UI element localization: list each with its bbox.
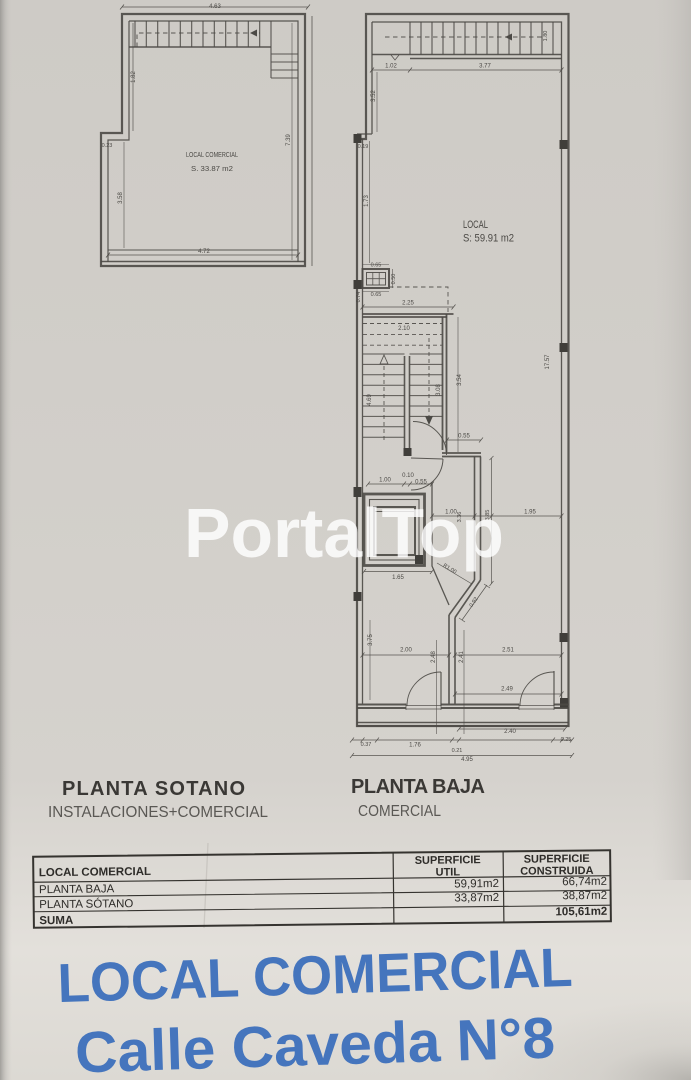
svg-text:0.21: 0.21 bbox=[452, 748, 463, 754]
svg-text:LOCAL COMERCIAL: LOCAL COMERCIAL bbox=[186, 150, 238, 159]
svg-text:PLANTA BAJA: PLANTA BAJA bbox=[39, 883, 115, 896]
svg-text:LOCAL COMERCIAL: LOCAL COMERCIAL bbox=[39, 866, 151, 879]
svg-text:PLANTA BAJA: PLANTA BAJA bbox=[351, 776, 486, 798]
svg-text:3.75: 3.75 bbox=[368, 634, 374, 646]
svg-text:0.55: 0.55 bbox=[415, 480, 427, 486]
svg-text:0.23: 0.23 bbox=[102, 143, 113, 149]
svg-text:0.19: 0.19 bbox=[358, 144, 369, 150]
svg-text:COMERCIAL: COMERCIAL bbox=[358, 803, 441, 820]
svg-text:2.00: 2.00 bbox=[400, 648, 412, 654]
svg-text:1.02: 1.02 bbox=[385, 64, 397, 70]
svg-text:4.72: 4.72 bbox=[198, 249, 210, 255]
svg-text:S: 59.91 m2: S: 59.91 m2 bbox=[463, 233, 514, 245]
svg-text:3.54: 3.54 bbox=[457, 374, 463, 386]
svg-text:1.76: 1.76 bbox=[409, 743, 421, 749]
svg-text:4.69: 4.69 bbox=[367, 394, 373, 406]
svg-text:4.95: 4.95 bbox=[461, 757, 473, 763]
svg-text:1.95: 1.95 bbox=[524, 510, 536, 516]
svg-text:3.77: 3.77 bbox=[479, 64, 491, 70]
svg-text:38,87m2: 38,87m2 bbox=[562, 890, 607, 903]
svg-text:1.80: 1.80 bbox=[543, 31, 549, 42]
svg-text:SUPERFICIE: SUPERFICIE bbox=[415, 854, 481, 867]
svg-text:1.00: 1.00 bbox=[379, 478, 391, 484]
svg-text:INSTALACIONES+COMERCIAL: INSTALACIONES+COMERCIAL bbox=[48, 804, 268, 821]
svg-text:3.52: 3.52 bbox=[371, 90, 377, 102]
svg-text:2.25: 2.25 bbox=[402, 301, 414, 307]
svg-text:59,91m2: 59,91m2 bbox=[454, 878, 499, 891]
svg-text:SUPERFICIE: SUPERFICIE bbox=[524, 853, 590, 866]
svg-text:UTIL: UTIL bbox=[436, 866, 461, 878]
svg-text:2.48: 2.48 bbox=[431, 651, 437, 663]
svg-text:105,61m2: 105,61m2 bbox=[555, 906, 607, 919]
svg-text:2.51: 2.51 bbox=[502, 648, 514, 654]
svg-text:1.65: 1.65 bbox=[392, 575, 404, 581]
svg-text:0.55: 0.55 bbox=[458, 434, 470, 440]
svg-text:17.57: 17.57 bbox=[545, 354, 551, 370]
svg-text:PLANTA SOTANO: PLANTA SOTANO bbox=[62, 778, 246, 800]
svg-text:2.10: 2.10 bbox=[398, 326, 410, 332]
svg-text:1.73: 1.73 bbox=[364, 195, 370, 207]
svg-text:1.82: 1.82 bbox=[131, 71, 137, 83]
svg-text:PLANTA SÓTANO: PLANTA SÓTANO bbox=[39, 897, 133, 911]
svg-text:0.50: 0.50 bbox=[391, 274, 397, 285]
svg-text:2.49: 2.49 bbox=[501, 687, 513, 693]
svg-text:0.65: 0.65 bbox=[371, 292, 382, 298]
svg-text:66,74m2: 66,74m2 bbox=[562, 876, 607, 889]
svg-text:33,87m2: 33,87m2 bbox=[454, 892, 499, 905]
svg-text:3.08: 3.08 bbox=[436, 384, 442, 396]
svg-text:7.39: 7.39 bbox=[286, 134, 292, 146]
svg-text:0.25: 0.25 bbox=[561, 737, 572, 743]
svg-text:4.63: 4.63 bbox=[209, 4, 221, 10]
svg-text:SUMA: SUMA bbox=[39, 915, 73, 927]
svg-text:PortalTop: PortalTop bbox=[184, 494, 504, 572]
svg-text:2.41: 2.41 bbox=[459, 651, 465, 663]
svg-text:0.74: 0.74 bbox=[356, 292, 362, 303]
svg-text:0.10: 0.10 bbox=[402, 473, 414, 479]
svg-text:2.40: 2.40 bbox=[504, 729, 516, 735]
svg-text:0.37: 0.37 bbox=[361, 742, 372, 748]
svg-text:S. 33.87 m2: S. 33.87 m2 bbox=[191, 164, 233, 173]
svg-text:3.58: 3.58 bbox=[118, 192, 124, 204]
svg-text:LOCAL: LOCAL bbox=[463, 219, 488, 231]
svg-text:0.65: 0.65 bbox=[371, 263, 382, 269]
